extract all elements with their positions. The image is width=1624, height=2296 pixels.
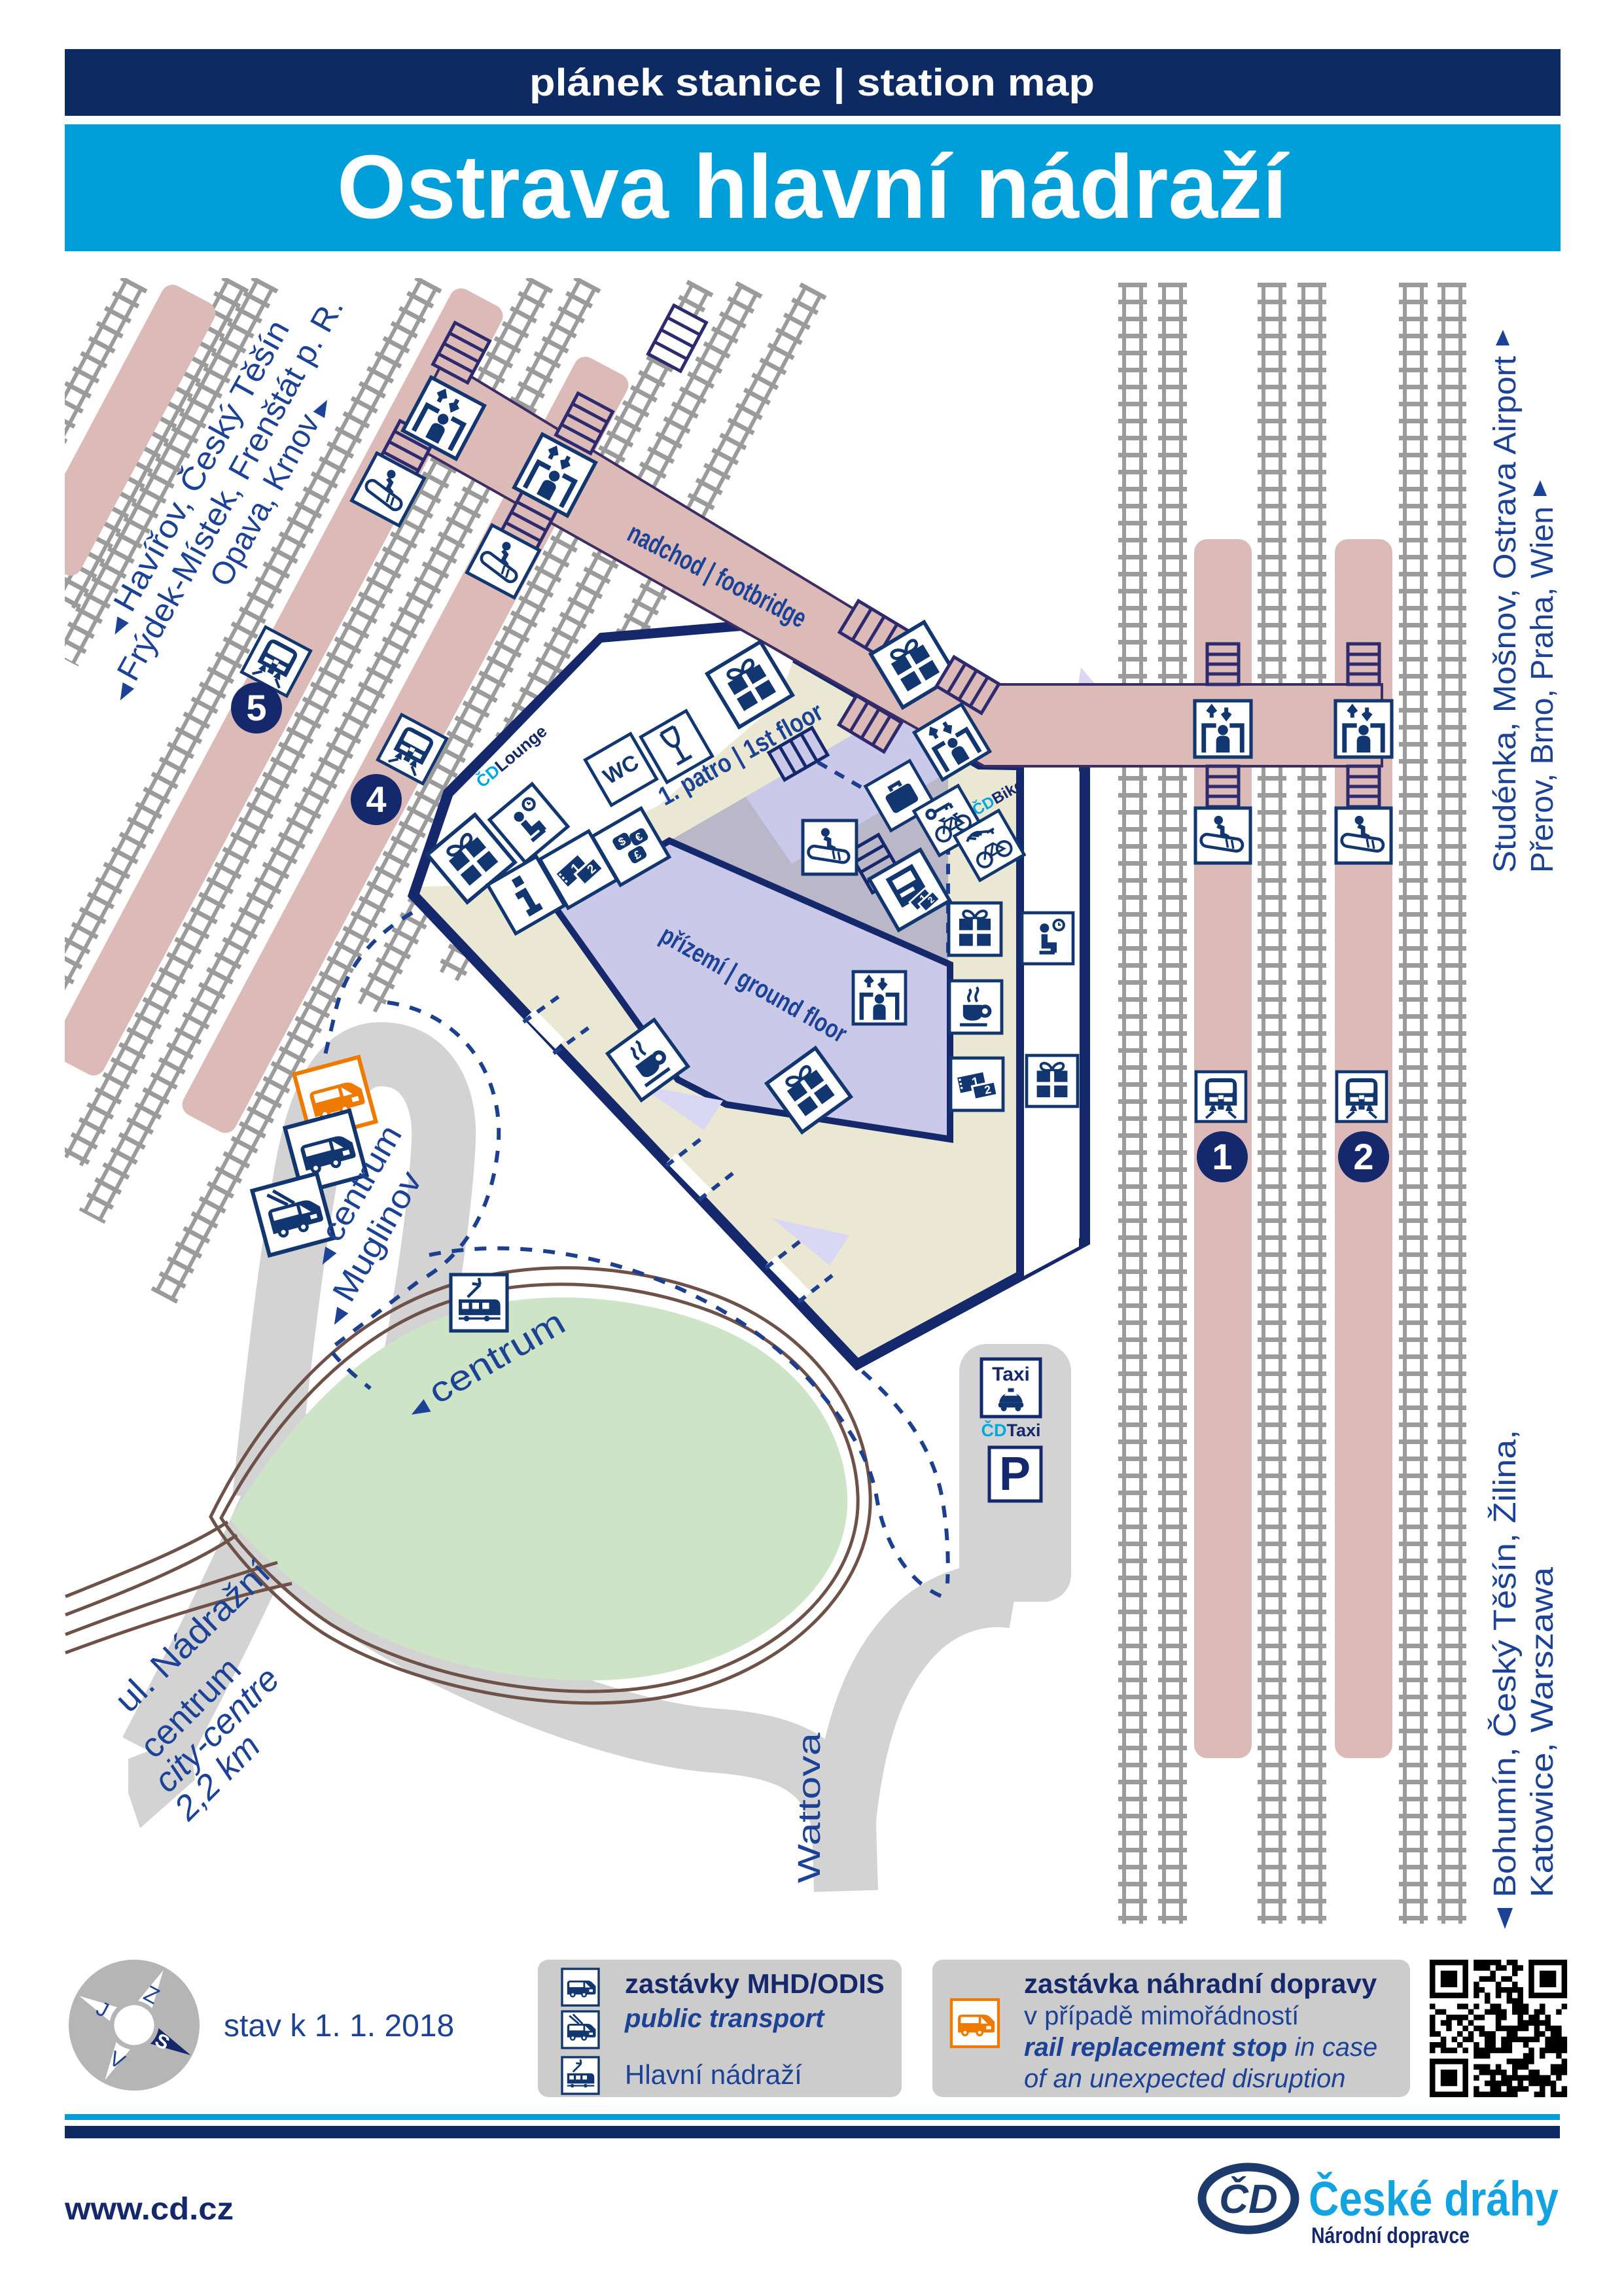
svg-text:zastávky MHD/ODIS: zastávky MHD/ODIS bbox=[625, 1968, 885, 1999]
svg-text:Wattova: Wattova bbox=[792, 1733, 827, 1883]
svg-text:České dráhy: České dráhy bbox=[1309, 2172, 1559, 2226]
svg-text:public transport: public transport bbox=[624, 2004, 825, 2033]
svg-text:Hlavní nádraží: Hlavní nádraží bbox=[625, 2059, 802, 2090]
svg-text:Katowice, Warszawa: Katowice, Warszawa bbox=[1525, 1567, 1560, 1898]
svg-text:Bohumín, Český Těšín, Žilina,: Bohumín, Český Těšín, Žilina, bbox=[1487, 1430, 1523, 1898]
svg-text:P: P bbox=[999, 1448, 1031, 1500]
svg-text:www.cd.cz: www.cd.cz bbox=[64, 2192, 234, 2227]
svg-text:Národní dopravce: Národní dopravce bbox=[1311, 2223, 1470, 2248]
svg-text:plánek stanice | station map: plánek stanice | station map bbox=[529, 62, 1095, 104]
svg-text:zastávka náhradní dopravy: zastávka náhradní dopravy bbox=[1024, 1968, 1377, 1999]
svg-text:Ostrava hlavní nádraží: Ostrava hlavní nádraží bbox=[337, 137, 1290, 238]
svg-text:of an unexpected disruption: of an unexpected disruption bbox=[1024, 2064, 1345, 2093]
svg-text:Přerov, Brno, Praha, Wien: Přerov, Brno, Praha, Wien bbox=[1525, 506, 1560, 873]
svg-text:5: 5 bbox=[246, 687, 266, 728]
svg-text:1: 1 bbox=[1212, 1136, 1232, 1177]
svg-text:2: 2 bbox=[1353, 1136, 1373, 1177]
svg-text:Studénka, Mošnov, Ostrava Airp: Studénka, Mošnov, Ostrava Airport bbox=[1488, 356, 1523, 873]
svg-text:Taxi: Taxi bbox=[992, 1364, 1030, 1385]
svg-text:v případě mimořádností: v případě mimořádností bbox=[1024, 2002, 1299, 2030]
svg-text:stav k 1. 1. 2018: stav k 1. 1. 2018 bbox=[224, 2009, 454, 2043]
svg-text:ČDTaxi: ČDTaxi bbox=[981, 1420, 1040, 1440]
svg-text:ČD: ČD bbox=[1219, 2177, 1278, 2222]
svg-text:rail replacement stop in case: rail replacement stop in case bbox=[1024, 2033, 1377, 2062]
svg-text:4: 4 bbox=[366, 779, 386, 820]
